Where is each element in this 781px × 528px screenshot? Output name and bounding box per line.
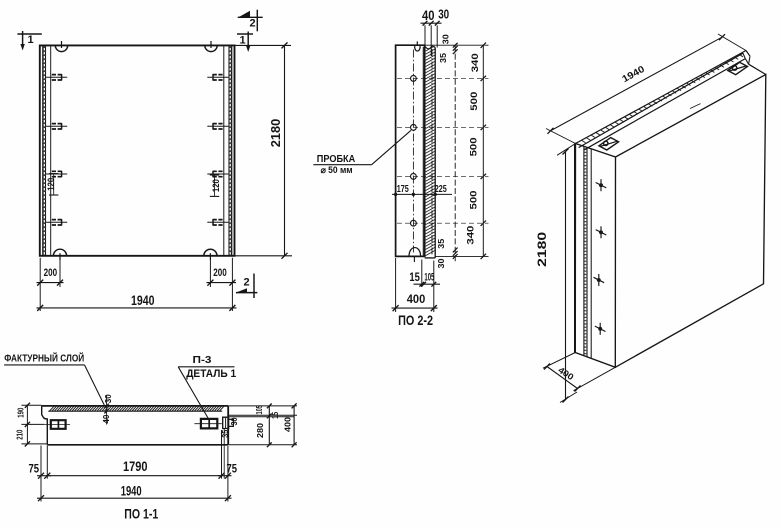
svg-text:1790: 1790 bbox=[123, 459, 148, 474]
svg-text:15: 15 bbox=[409, 270, 420, 284]
svg-text:2: 2 bbox=[244, 276, 250, 288]
svg-text:⌀ 50 мм: ⌀ 50 мм bbox=[321, 165, 353, 175]
svg-text:400: 400 bbox=[407, 292, 426, 306]
svg-text:200: 200 bbox=[213, 267, 227, 279]
svg-text:2: 2 bbox=[250, 17, 256, 29]
svg-text:105: 105 bbox=[424, 272, 434, 284]
svg-text:1: 1 bbox=[240, 34, 246, 46]
svg-text:1940: 1940 bbox=[131, 292, 155, 308]
svg-text:2180: 2180 bbox=[269, 119, 283, 148]
svg-text:340: 340 bbox=[470, 53, 480, 72]
svg-text:75: 75 bbox=[227, 461, 238, 475]
svg-text:30: 30 bbox=[230, 417, 239, 425]
svg-text:30: 30 bbox=[441, 34, 450, 45]
svg-text:2180: 2180 bbox=[535, 231, 549, 266]
svg-text:30: 30 bbox=[437, 258, 446, 269]
svg-text:40: 40 bbox=[101, 414, 111, 423]
svg-text:400: 400 bbox=[282, 417, 292, 432]
svg-text:1940: 1940 bbox=[620, 64, 646, 85]
svg-text:ДЕТАЛЬ 1: ДЕТАЛЬ 1 bbox=[186, 368, 236, 380]
svg-text:35: 35 bbox=[221, 429, 230, 437]
svg-text:500: 500 bbox=[469, 191, 479, 210]
svg-text:ПРОБКА: ПРОБКА bbox=[317, 154, 356, 165]
svg-text:500: 500 bbox=[469, 92, 479, 111]
svg-text:120: 120 bbox=[46, 178, 57, 191]
svg-text:200: 200 bbox=[44, 267, 58, 279]
svg-text:340: 340 bbox=[466, 226, 476, 245]
svg-text:75: 75 bbox=[29, 461, 40, 475]
svg-text:40: 40 bbox=[422, 7, 435, 23]
svg-text:1940: 1940 bbox=[121, 483, 142, 498]
svg-text:120: 120 bbox=[211, 179, 222, 192]
svg-text:ПО 2-2: ПО 2-2 bbox=[398, 313, 433, 328]
svg-text:ПО 1-1: ПО 1-1 bbox=[124, 506, 158, 521]
svg-text:30: 30 bbox=[103, 394, 113, 403]
svg-text:35: 35 bbox=[437, 238, 446, 249]
svg-text:225: 225 bbox=[435, 184, 447, 195]
svg-text:210: 210 bbox=[15, 430, 25, 440]
svg-text:280: 280 bbox=[255, 423, 265, 438]
svg-text:105: 105 bbox=[255, 405, 264, 415]
svg-text:30: 30 bbox=[438, 7, 449, 22]
svg-text:35: 35 bbox=[439, 52, 448, 63]
svg-text:ФАКТУРНЫЙ СЛОЙ: ФАКТУРНЫЙ СЛОЙ bbox=[4, 352, 84, 365]
svg-text:190: 190 bbox=[15, 408, 25, 418]
svg-text:500: 500 bbox=[469, 137, 479, 156]
svg-text:175: 175 bbox=[397, 184, 409, 195]
svg-text:П-3: П-3 bbox=[193, 355, 213, 366]
svg-text:1: 1 bbox=[28, 34, 34, 46]
svg-text:15: 15 bbox=[271, 411, 280, 418]
